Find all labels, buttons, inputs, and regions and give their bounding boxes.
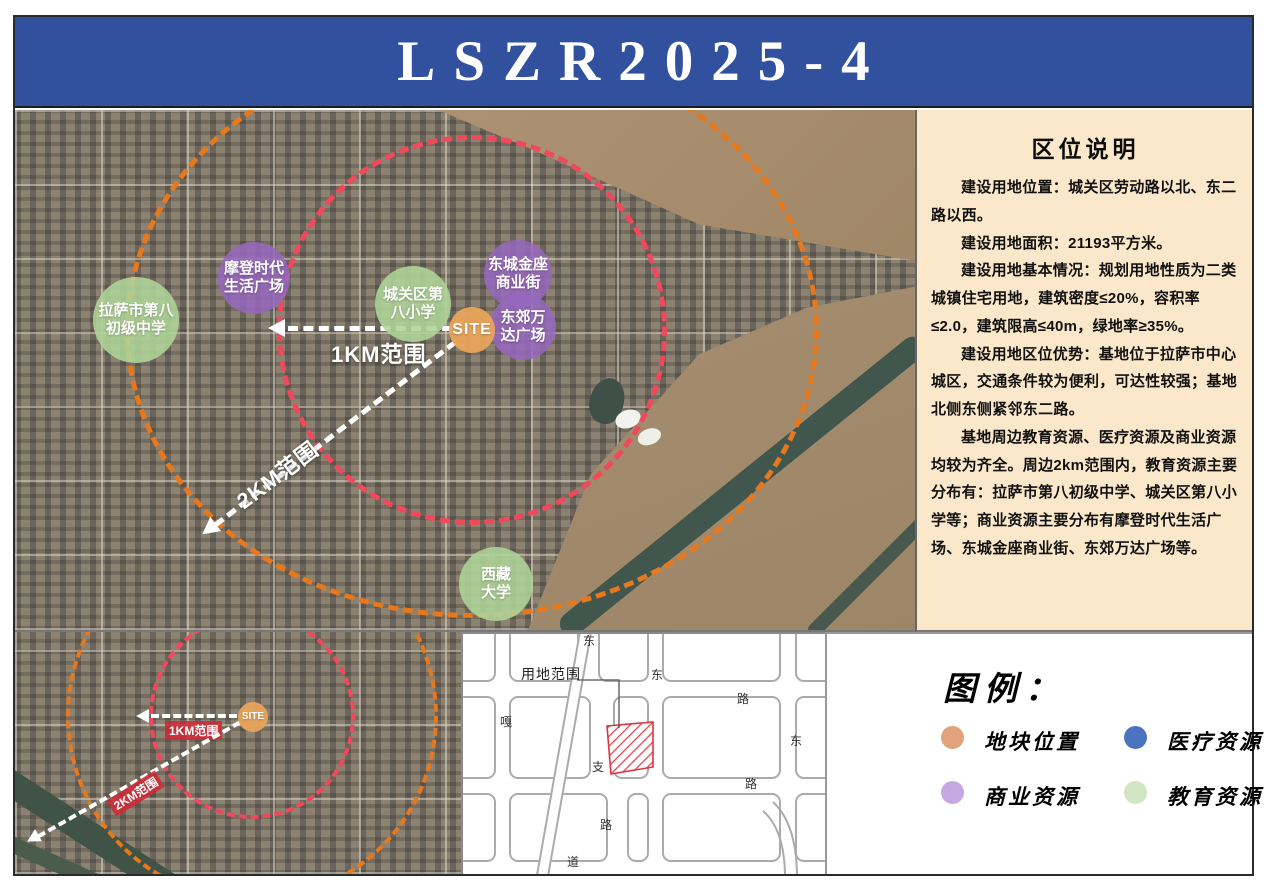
marker-site: SITE — [449, 307, 495, 353]
road-plan-map: 用地范围 东 东 路 东 路 嘎 支 路 道 — [461, 632, 825, 874]
inset-arrow-1km-head — [136, 709, 149, 723]
info-paragraph: 建设用地位置：城关区劳动路以北、东二路以西。 — [931, 174, 1240, 230]
main-satellite-map: 1KM范围 2KM范围 拉萨市第八 初级中学 摩登时代 生活广场 城关区第 八小… — [15, 110, 915, 632]
site-parcel — [607, 722, 653, 774]
road-char: 东 — [651, 666, 663, 683]
legend-panel: 图例： 地块位置 医疗资源 商业资源 教育资源 — [825, 632, 1252, 874]
inset-site-label: SITE — [242, 711, 264, 723]
legend-label-medical: 医疗资源 — [1167, 726, 1263, 756]
marker-text: 初级中学 — [106, 320, 166, 338]
road-char: 支 — [592, 758, 604, 775]
marker-eighth-primary-school: 城关区第 八小学 — [375, 266, 451, 342]
legend-dot-medical — [1124, 726, 1147, 749]
legend-label-commercial: 商业资源 — [984, 781, 1080, 811]
marker-wanda-plaza: 东郊万 达广场 — [490, 294, 556, 360]
marker-text: 城关区第 — [383, 286, 443, 304]
legend-label-education: 教育资源 — [1167, 781, 1263, 811]
marker-text: 商业街 — [495, 274, 540, 292]
parcel-label: 用地范围 — [521, 664, 581, 684]
road-char: 东 — [790, 732, 802, 749]
ramp-curve — [763, 811, 785, 874]
road-char: 道 — [567, 853, 579, 870]
legend-label-plot-location: 地块位置 — [984, 726, 1080, 756]
info-panel-title: 区位说明 — [931, 130, 1240, 164]
marker-text: 东郊万 — [500, 309, 545, 327]
road-char: 路 — [745, 775, 757, 792]
parcel-overlay — [463, 634, 825, 874]
marker-text: 达广场 — [500, 327, 545, 345]
road-char: 嘎 — [500, 713, 512, 730]
inset-satellite-map: 1KM范围 2KM范围 SITE — [15, 632, 461, 874]
arrow-1km-head — [268, 319, 285, 337]
info-panel: 区位说明 建设用地位置：城关区劳动路以北、东二路以西。 建设用地面积：21193… — [915, 110, 1252, 632]
marker-tibet-university: 西藏 大学 — [459, 547, 533, 621]
page-title: LSZR2025-4 — [379, 29, 887, 94]
page-frame: LSZR2025-4 1KM范围 2KM范围 拉萨市第八 初级中学 摩登时代 生… — [13, 15, 1254, 876]
inset-arrow-1km-line — [151, 714, 237, 718]
header: LSZR2025-4 — [15, 17, 1252, 108]
marker-text: 大学 — [481, 584, 511, 602]
arrow-2km-head — [197, 517, 221, 542]
info-paragraph: 建设用地面积：21193平方米。 — [931, 230, 1240, 258]
marker-text: 东城金座 — [488, 256, 548, 274]
info-panel-body: 建设用地位置：城关区劳动路以北、东二路以西。 建设用地面积：21193平方米。 … — [931, 174, 1240, 563]
parcel-leader-line — [577, 680, 619, 728]
legend-dot-education — [1124, 781, 1147, 804]
marker-text: 摩登时代 — [224, 260, 284, 278]
legend-dot-commercial — [941, 781, 964, 804]
marker-middle-school: 拉萨市第八 初级中学 — [93, 277, 179, 363]
road-char: 路 — [600, 816, 612, 833]
info-paragraph: 建设用地区位优势：基地位于拉萨市中心城区，交通条件较为便利，可达性较强；基地北侧… — [931, 341, 1240, 424]
road-char: 东 — [583, 632, 595, 649]
marker-text: 八小学 — [390, 304, 435, 322]
legend-title: 图例： — [943, 662, 1066, 710]
marker-text: 生活广场 — [224, 278, 284, 296]
site-label: SITE — [452, 320, 492, 339]
marker-modern-times-plaza: 摩登时代 生活广场 — [218, 242, 290, 314]
inset-marker-site: SITE — [238, 702, 268, 732]
marker-text: 拉萨市第八 — [98, 302, 173, 320]
info-paragraph: 基地周边教育资源、医疗资源及商业资源均较为齐全。周边2km范围内，教育资源主要分… — [931, 424, 1240, 563]
info-paragraph: 建设用地基本情况：规划用地性质为二类城镇住宅用地，建筑密度≤20%，容积率≤2.… — [931, 257, 1240, 340]
marker-text: 西藏 — [481, 566, 511, 584]
road-char: 路 — [737, 690, 749, 707]
legend-dot-plot-location — [941, 726, 964, 749]
